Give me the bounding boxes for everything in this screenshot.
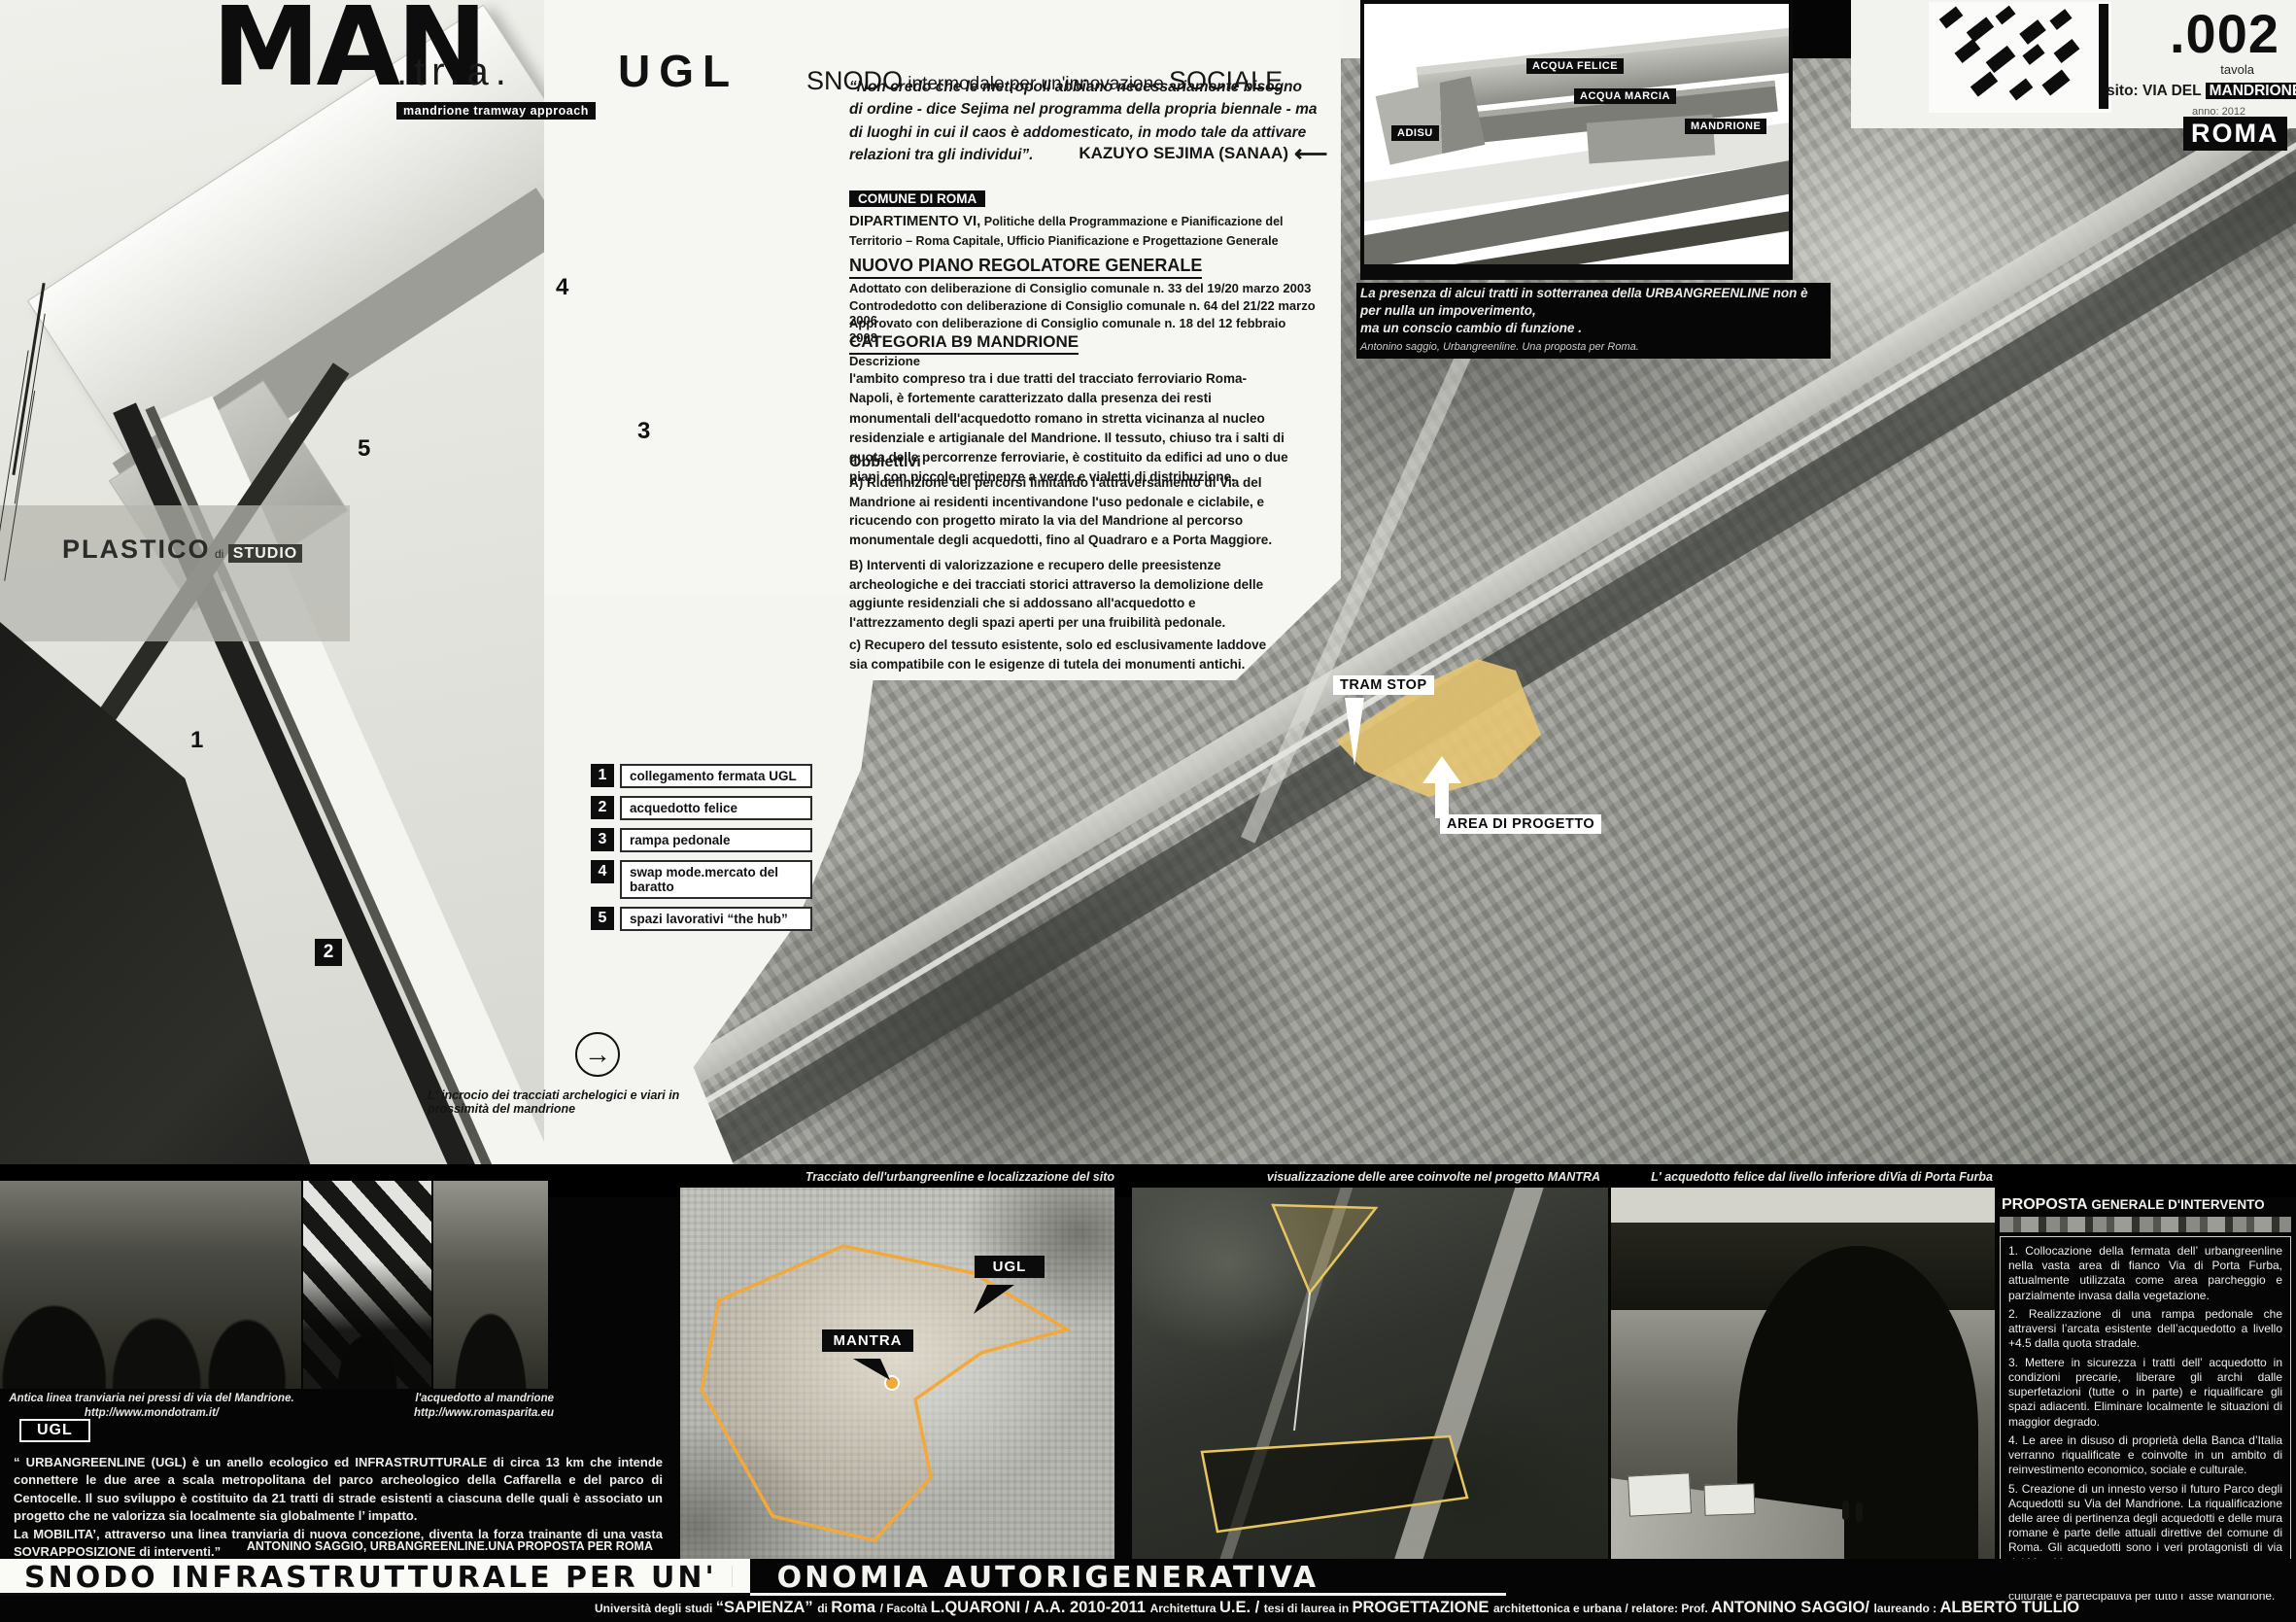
legend-item: 1 collegamento fermata UGL <box>591 764 812 788</box>
proposta-item: 4. Le aree in disuso di proprietà della … <box>2008 1433 2282 1478</box>
plastico-di: di <box>215 547 223 561</box>
credit-seg: U.E. <box>1219 1599 1255 1616</box>
footer-rule <box>0 1593 1506 1596</box>
credit-seg: ANTONINO SAGGIO/ <box>1711 1599 1873 1616</box>
credit-seg: Architettura <box>1150 1602 1219 1615</box>
ugl-chip: UGL <box>19 1419 90 1442</box>
mantra-areas-photo <box>1132 1188 1608 1565</box>
ugl-route-map <box>680 1188 1114 1565</box>
tracciato-caption: Tracciato dell'urbangreenline e localizz… <box>680 1170 1114 1184</box>
label-acqua-marcia: ACQUA MARCIA <box>1574 88 1676 104</box>
model-marker-2: 2 <box>315 939 342 966</box>
model-photo-plastico <box>0 0 544 1181</box>
dipartimento-bold: DIPARTIMENTO VI, <box>849 213 980 229</box>
title-mid: .tr.a. <box>396 51 513 94</box>
descrizione-label: Descrizione <box>849 354 920 368</box>
credit-seg: Facoltà <box>886 1602 930 1615</box>
dipartimento-text: DIPARTIMENTO VI, Politiche della Program… <box>849 211 1310 250</box>
credit-seg: architettonica e urbana <box>1493 1602 1625 1615</box>
right-arrow-icon: → <box>575 1032 620 1077</box>
antica-caption-text: Antica linea tranviaria nei pressi di vi… <box>0 1392 303 1406</box>
site-line: sito: VIA DEL MANDRIONE <box>2107 83 2296 100</box>
photo-acquedotto <box>433 1181 548 1389</box>
quote-author: KAZUYO SEJIMA (SANAA) <box>849 144 1288 163</box>
proposta-title-bold: PROPOSTA <box>2002 1196 2088 1213</box>
incrocio-caption: L' incrocio dei tracciati archelogici e … <box>428 1088 719 1116</box>
obbiettivo-b: B) Interventi di valorizzazione e recupe… <box>849 556 1294 632</box>
ugl-attribution: ANTONINO SAGGIO, URBANGREENLINE.UNA PROP… <box>194 1539 653 1553</box>
diagram-caption: La presenza di alcui tratti in sotterran… <box>1356 283 1831 359</box>
legend-item: 4 swap mode.mercato del baratto <box>591 860 812 899</box>
model-marker-3: 3 <box>637 418 650 445</box>
antica-caption: Antica linea tranviaria nei pressi di vi… <box>0 1392 303 1421</box>
credit-seg: tesi di laurea in <box>1264 1602 1353 1615</box>
obbiettivi-label: Obbiettivi <box>849 454 921 471</box>
photo-striped-arch <box>303 1181 431 1389</box>
left-arrow-icon: ⟵ <box>1294 140 1327 168</box>
legend-number: 4 <box>591 860 614 883</box>
van <box>1703 1483 1755 1516</box>
footer-title: SNODO INFRASTRUTTURALE PER UN' ECONOMIA … <box>0 1558 2296 1595</box>
model-ground <box>0 505 350 641</box>
credit-seg: L.QUARONI <box>931 1599 1025 1616</box>
piano-regolatore-title: NUOVO PIANO REGOLATORE GENERALE <box>849 256 1202 279</box>
credit-seg: Roma <box>831 1599 879 1616</box>
credit-seg: di <box>817 1602 831 1615</box>
viz-road <box>1206 1188 1361 1565</box>
legend-label: acquedotto felice <box>620 796 812 820</box>
label-acqua-felice: ACQUA FELICE <box>1526 58 1624 74</box>
diagram-caption-line1: La presenza di alcui tratti in sotterran… <box>1360 285 1827 320</box>
tram-stop-label: TRAM STOP <box>1333 675 1434 695</box>
site-prefix: sito: VIA DEL <box>2107 83 2206 99</box>
model-marker-5: 5 <box>358 435 370 463</box>
porta-furba-photo <box>1611 1188 1995 1565</box>
legend-label: rampa pedonale <box>620 828 812 852</box>
title-tag: mandrione tramway approach <box>396 102 596 120</box>
site-chip-mandrione: MANDRIONE <box>2206 83 2296 99</box>
pedestrian <box>1856 1502 1863 1522</box>
photo-antica-linea <box>0 1181 301 1389</box>
categoria-title: CATEGORIA B9 MANDRIONE <box>849 332 1079 355</box>
proposta-item: 3. Mettere in sicurezza i tratti dell’ a… <box>2008 1356 2282 1430</box>
sheet-number: .002 <box>2170 2 2279 65</box>
legend-number: 3 <box>591 828 614 851</box>
legend-label: swap mode.mercato del baratto <box>620 860 812 899</box>
proposta-title-rest: GENERALE D'INTERVENTO <box>2088 1197 2265 1212</box>
plastico-label: PLASTICO di STUDIO <box>62 535 302 565</box>
acquedotto-caption-text: l'acquedotto al mandrione <box>321 1392 554 1406</box>
comune-di-roma-chip: COMUNE DI ROMA <box>849 190 985 207</box>
axonometric-diagram: ACQUA FELICE ACQUA MARCIA ADISU MANDRION… <box>1360 0 1793 280</box>
legend-number: 5 <box>591 907 614 930</box>
proposta-list: 1. Collocazione della fermata dell’ urba… <box>2000 1236 2291 1561</box>
plastico-studio: STUDIO <box>228 544 302 563</box>
credit-seg: / <box>1255 1599 1264 1616</box>
diagram-caption-credit: Antonino saggio, Urbangreenline. Una pro… <box>1360 341 1827 353</box>
footer-credits: Università degli studi “SAPIENZA” di Rom… <box>595 1599 2290 1617</box>
legend-item: 3 rampa pedonale <box>591 828 812 852</box>
proposta-photo-strip <box>2000 1217 2291 1232</box>
credit-seg: relatore: Prof. <box>1631 1602 1711 1615</box>
title-ugl: UGL <box>618 45 738 97</box>
plastico-word: PLASTICO <box>62 535 211 564</box>
credit-seg: “SAPIENZA” <box>716 1599 818 1616</box>
legend-item: 2 acquedotto felice <box>591 796 812 820</box>
model-marker-4: 4 <box>556 274 568 301</box>
city-label-roma: ROMA <box>2183 117 2287 151</box>
thesis-board: PLASTICO di STUDIO 1 2 3 4 5 MAN .tr.a. … <box>0 0 2296 1622</box>
map-label-mantra: MANTRA <box>822 1329 913 1352</box>
project-legend: 1 collegamento fermata UGL 2 acquedotto … <box>591 764 812 939</box>
credit-seg: Università degli studi <box>595 1602 716 1615</box>
legend-item: 5 spazi lavorativi “the hub” <box>591 907 812 931</box>
pedestrian <box>1842 1501 1849 1520</box>
proposta-title: PROPOSTA GENERALE D'INTERVENTO <box>2002 1196 2265 1214</box>
area-di-progetto-label: AREA DI PROGETTO <box>1440 814 1601 834</box>
credit-seg: / <box>1625 1602 1631 1615</box>
diagram-bottom-bar <box>1364 264 1789 276</box>
credit-seg: A.A. 2010-2011 <box>1033 1599 1149 1616</box>
obbiettivo-c: c) Recupero del tessuto esistente, solo … <box>849 636 1273 673</box>
proposta-item: 1. Collocazione della fermata dell’ urba… <box>2008 1244 2282 1303</box>
acquedotto-caption: l'acquedotto al mandrione http://www.rom… <box>321 1392 554 1421</box>
legend-label: spazi lavorativi “the hub” <box>620 907 812 931</box>
obbiettivo-a: A) Ridefinizione dei percorsi limitando … <box>849 473 1302 549</box>
label-mandrione: MANDRIONE <box>1685 119 1766 134</box>
credit-seg: laureando : <box>1874 1602 1940 1615</box>
diagram-caption-line2: ma un conscio cambio di funzione . <box>1360 320 1827 337</box>
map-label-ugl: UGL <box>975 1256 1045 1278</box>
van <box>1628 1472 1692 1516</box>
proposta-item: 2. Realizzazione di una rampa pedonale c… <box>2008 1307 2282 1352</box>
mantra-viz-caption: visualizzazione delle aree coinvolte nel… <box>1132 1170 1600 1184</box>
legend-number: 2 <box>591 796 614 819</box>
credit-seg: ALBERTO TULLIO <box>1940 1599 2080 1616</box>
viz-road <box>1378 1188 1554 1565</box>
credit-seg: PROGETTAZIONE <box>1353 1599 1493 1616</box>
legend-number: 1 <box>591 764 614 787</box>
diagram-adisu-building <box>1376 76 1486 164</box>
acquedotto-caption-url: http://www.romasparita.eu <box>321 1406 554 1421</box>
label-adisu: ADISU <box>1391 125 1439 141</box>
sheet-number-label: tavola <box>2194 62 2254 77</box>
figure-ground-map <box>1929 2 2111 113</box>
piano-line: Adottato con deliberazione di Consiglio … <box>849 281 1316 295</box>
furba-caption: L' acquedotto felice dal livello inferio… <box>1608 1170 1993 1184</box>
model-marker-1: 1 <box>190 727 203 754</box>
legend-label: collegamento fermata UGL <box>620 764 812 788</box>
